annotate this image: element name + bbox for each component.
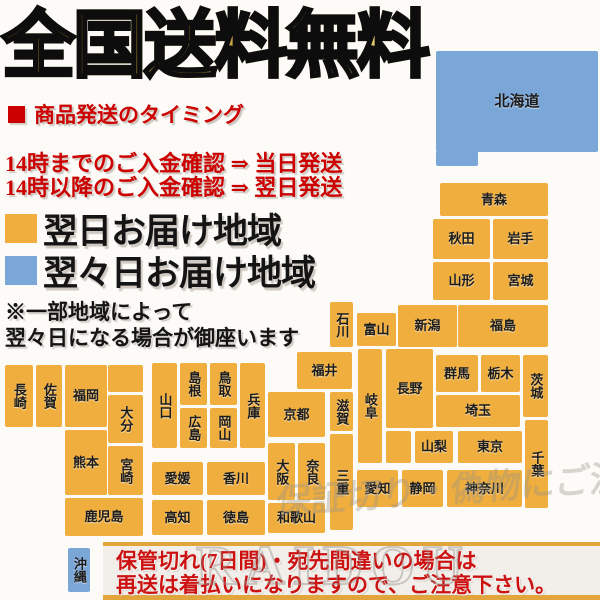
storage-warning-banner: 保管切れ(7日間)・宛先間違いの場合は 再送は着払いになりますので、ご注意下さい… [103,542,600,600]
region-label-kumamoto: 熊本 [73,456,99,470]
region-ehime: 愛媛 [152,462,203,495]
region-fukushima: 福島 [458,305,548,347]
region-label-niigata: 新潟 [414,319,440,333]
region-label-mie: 三重 [335,469,349,495]
region-nagano-ext [386,431,411,463]
region-label-ibaraki: 茨城 [529,373,543,399]
region-label-kyoto: 京都 [283,408,309,422]
region-yamagata: 山形 [433,262,490,300]
region-label-nara: 奈良 [305,459,319,485]
region-akita: 秋田 [433,219,490,259]
region-label-miyagi: 宮城 [507,274,533,288]
region-tokyo: 東京 [458,431,522,463]
region-ishikawa: 石川 [330,302,353,347]
region-saga: 佐賀 [36,365,62,427]
region-label-wakayama: 和歌山 [277,511,316,525]
second-day-color-swatch [5,256,37,285]
page-title: 全国送料無料 [2,0,442,92]
region-label-chiba: 千葉 [530,451,544,477]
region-oita: 大分 [108,395,143,443]
region-miyazaki: 宮崎 [108,446,143,495]
region-hokkaido-ext [436,151,478,166]
region-saitama: 埼玉 [436,395,520,427]
region-label-ehime: 愛媛 [164,472,190,486]
region-ibaraki: 茨城 [523,355,548,417]
region-fukui: 福井 [297,352,352,389]
red-square-bullet-icon [8,106,25,123]
region-label-aomori: 青森 [481,193,507,207]
region-osaka: 大阪 [268,443,295,500]
region-label-yamaguchi: 山口 [158,393,172,419]
region-aichi: 愛知 [357,470,398,507]
region-label-nagano: 長野 [396,382,422,396]
legend-second-day-label: 翌々日お届け地域 [43,245,315,296]
region-label-fukui: 福井 [311,364,337,378]
region-label-hokkaido: 北海道 [494,94,539,110]
region-label-kanagawa: 神奈川 [465,482,504,496]
region-label-tochigi: 栃木 [487,367,513,381]
region-mie: 三重 [330,434,353,530]
storage-warning-line-2: 再送は着払いになりますので、ご注意下さい。 [116,573,600,597]
region-label-tokyo: 東京 [477,440,503,454]
region-label-aichi: 愛知 [364,482,390,496]
region-okinawa: 沖縄 [68,548,90,592]
region-yamanashi: 山梨 [415,431,453,463]
region-nagano: 長野 [386,349,433,428]
region-niigata: 新潟 [398,305,457,347]
region-label-tottori: 鳥取 [217,371,231,397]
region-okayama: 岡山 [210,408,237,448]
region-gunma: 群馬 [436,355,478,392]
region-fukuoka: 福岡 [65,365,107,427]
region-label-kagoshima: 鹿児島 [84,510,123,524]
next-day-color-swatch [5,214,37,243]
region-label-osaka: 大阪 [275,459,289,485]
region-hokkaido: 北海道 [436,51,598,152]
region-label-tokushima: 徳島 [223,511,249,525]
region-label-shimane: 島根 [187,371,201,397]
legend-second-day: 翌々日お届け地域 [5,245,315,296]
region-kagoshima: 鹿児島 [65,498,143,536]
region-shizuoka: 静岡 [402,470,443,507]
region-label-miyazaki: 宮崎 [119,458,133,484]
region-label-fukuoka: 福岡 [73,389,99,403]
shipping-timing-heading: 商品発送のタイミング [8,101,244,127]
region-label-gifu: 岐阜 [363,393,377,419]
region-hyogo: 兵庫 [240,363,265,448]
region-yamaguchi: 山口 [152,363,177,448]
region-kagawa: 香川 [207,462,265,495]
region-shimane: 島根 [180,363,207,405]
region-label-yamagata: 山形 [448,274,474,288]
region-kumamoto: 熊本 [65,430,107,495]
anti-counterfeit-watermark: 保証切り・偽物にご注意下さい [275,446,600,525]
region-kochi: 高知 [152,500,203,535]
region-label-oita: 大分 [119,406,133,432]
region-chiba: 千葉 [525,420,548,508]
region-label-shizuoka: 静岡 [409,482,435,496]
region-tochigi: 栃木 [481,355,520,392]
region-nara: 奈良 [298,443,325,500]
region-label-kagawa: 香川 [223,472,249,486]
region-label-hyogo: 兵庫 [246,393,260,419]
region-label-toyama: 富山 [363,323,389,337]
note-line-2: 翌々日になる場合が御座います [5,322,299,352]
region-label-hiroshima: 広島 [187,415,201,441]
region-label-kochi: 高知 [164,511,190,525]
region-label-saga: 佐賀 [42,383,56,409]
region-label-nagasaki: 長崎 [12,383,26,409]
region-label-okayama: 岡山 [217,415,231,441]
region-label-iwate: 岩手 [507,232,533,246]
region-label-ishikawa: 石川 [335,312,349,338]
region-miyagi: 宮城 [493,262,548,300]
region-label-saitama: 埼玉 [465,404,491,418]
region-kyoto: 京都 [268,392,325,437]
region-label-akita: 秋田 [448,232,474,246]
region-hiroshima: 広島 [180,408,207,448]
free-shipping-infographic: 全国送料無料 商品発送のタイミング 14時までのご入金確認 ⇒ 当日発送 14時… [0,0,600,600]
region-tokushima: 徳島 [207,500,265,535]
region-label-okinawa: 沖縄 [72,557,86,583]
payment-after-14-rule: 14時以降のご入金確認 ⇒ 翌日発送 [5,170,342,202]
region-label-shiga: 滋賀 [335,399,349,425]
shipping-timing-heading-label: 商品発送のタイミング [34,99,244,129]
storage-warning-line-1: 保管切れ(7日間)・宛先間違いの場合は [116,549,600,573]
region-shiga: 滋賀 [330,392,353,431]
region-kanagawa: 神奈川 [447,470,522,507]
region-nagasaki: 長崎 [5,365,33,427]
region-label-gunma: 群馬 [444,367,470,381]
region-wakayama: 和歌山 [268,503,325,533]
region-label-fukushima: 福島 [490,319,516,333]
region-toyama: 富山 [357,313,396,346]
region-fukuoka-ext [108,365,143,392]
region-iwate: 岩手 [493,219,548,259]
region-aomori: 青森 [440,183,548,216]
region-label-yamanashi: 山梨 [421,440,447,454]
region-tottori: 鳥取 [210,363,237,405]
region-gifu: 岐阜 [358,349,382,463]
